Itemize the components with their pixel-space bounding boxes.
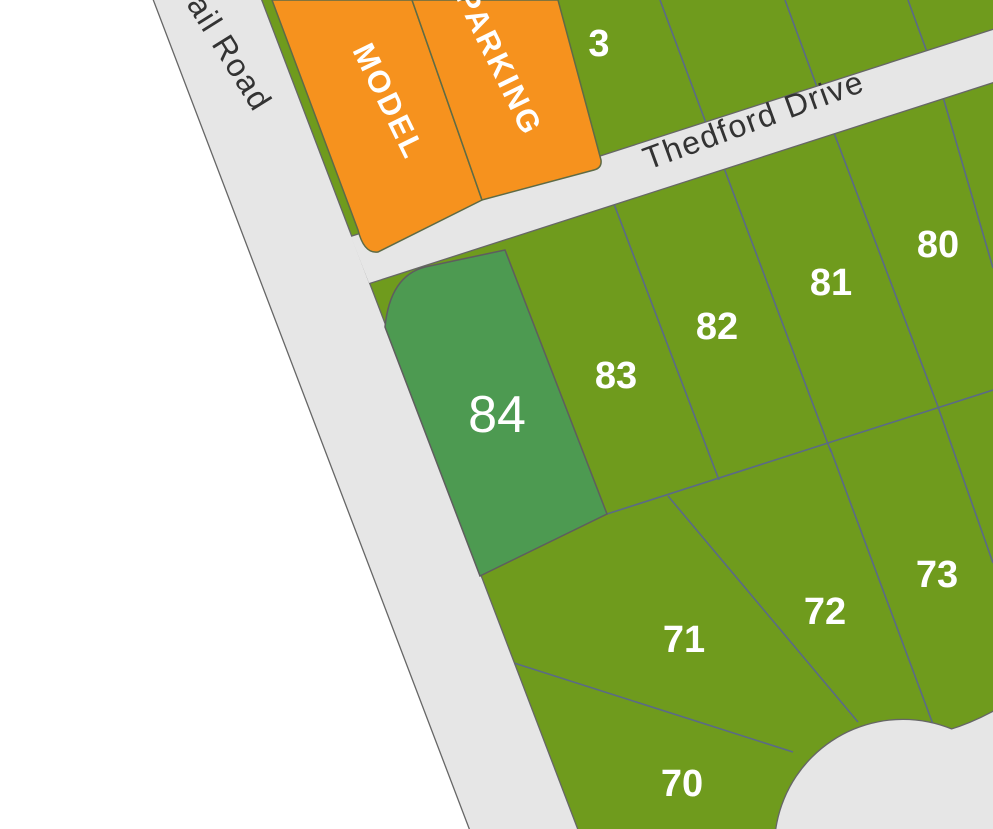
lot-label-71[interactable]: 71 (663, 619, 705, 661)
lot-label-84[interactable]: 84 (468, 386, 526, 444)
lot-label-83[interactable]: 83 (595, 355, 637, 397)
lot-label-81[interactable]: 81 (810, 262, 852, 304)
lot-label-80[interactable]: 80 (917, 224, 959, 266)
plat-map: ail Road Thedford Drive MODEL PARKING 3 … (0, 0, 993, 829)
lot-label-72[interactable]: 72 (804, 591, 846, 633)
lot-label-73[interactable]: 73 (916, 554, 958, 596)
lot-label-3[interactable]: 3 (588, 23, 609, 65)
lot-label-82[interactable]: 82 (696, 306, 738, 348)
lot-label-70[interactable]: 70 (661, 763, 703, 805)
